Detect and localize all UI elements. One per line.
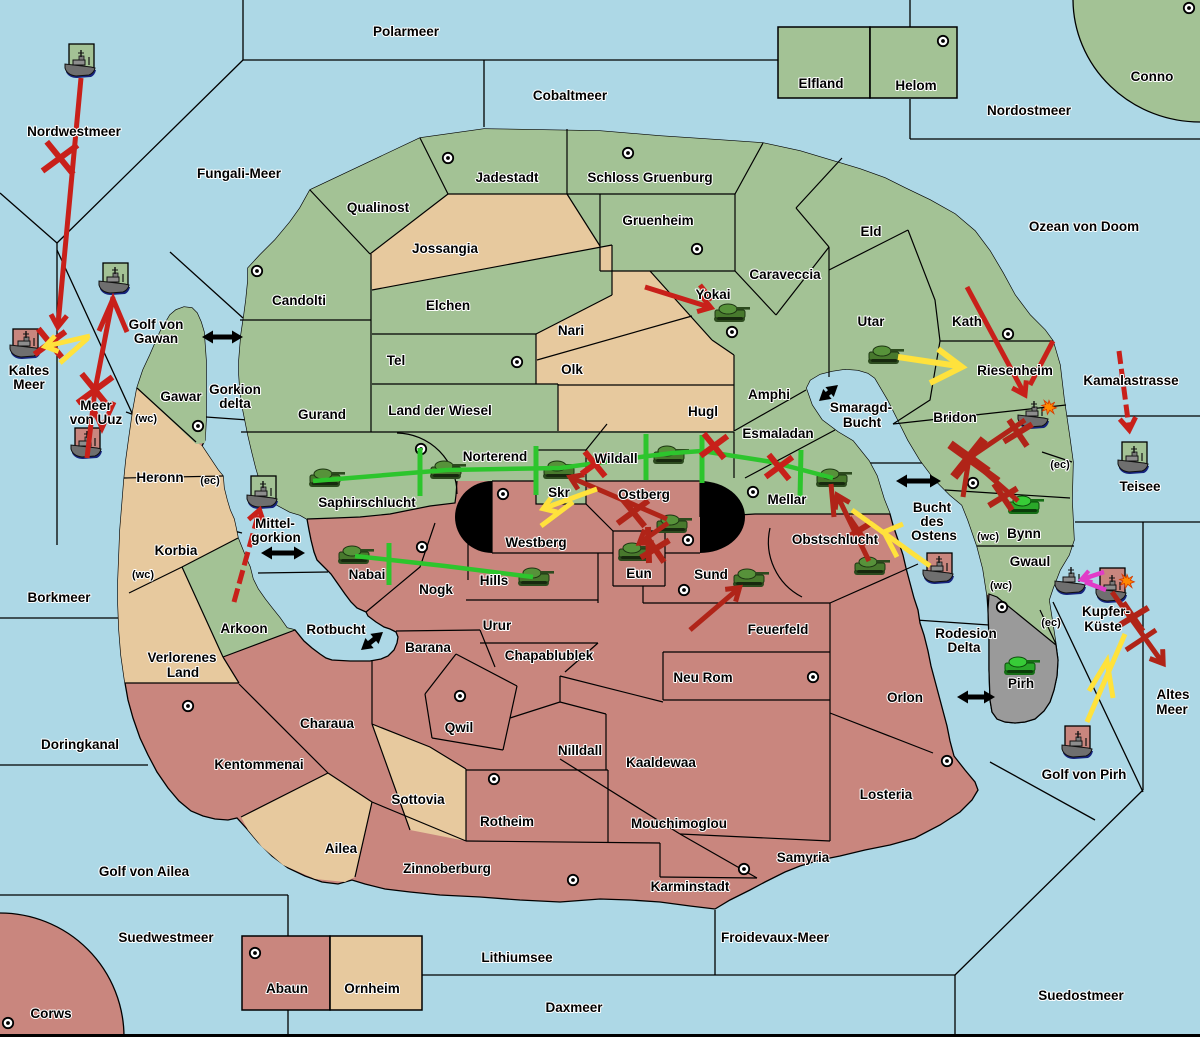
- svg-text:Yokai: Yokai: [695, 287, 730, 302]
- svg-text:Froidevaux-Meer: Froidevaux-Meer: [721, 930, 830, 945]
- svg-text:Kentommenai: Kentommenai: [214, 757, 303, 772]
- svg-text:Obstschlucht: Obstschlucht: [792, 532, 879, 547]
- svg-text:Meer: Meer: [80, 398, 112, 413]
- svg-text:Suedwestmeer: Suedwestmeer: [118, 930, 214, 945]
- svg-text:Feuerfeld: Feuerfeld: [748, 622, 809, 637]
- svg-text:delta: delta: [219, 396, 251, 411]
- svg-text:Sottovia: Sottovia: [391, 792, 445, 807]
- svg-text:Daxmeer: Daxmeer: [545, 1000, 603, 1015]
- svg-text:Cobaltmeer: Cobaltmeer: [533, 88, 608, 103]
- svg-text:Polarmeer: Polarmeer: [373, 24, 440, 39]
- svg-text:Elchen: Elchen: [426, 298, 470, 313]
- svg-text:Kamalastrasse: Kamalastrasse: [1083, 373, 1179, 388]
- svg-text:Hills: Hills: [480, 573, 509, 588]
- svg-text:Nogk: Nogk: [419, 582, 453, 597]
- svg-text:Mellar: Mellar: [767, 492, 807, 507]
- svg-text:Meer: Meer: [13, 377, 45, 392]
- svg-text:Golf von Ailea: Golf von Ailea: [99, 864, 190, 879]
- svg-text:Bucht: Bucht: [913, 500, 952, 515]
- svg-text:Gorkion: Gorkion: [209, 382, 261, 397]
- svg-text:Meer: Meer: [1156, 702, 1188, 717]
- svg-text:Saphirschlucht: Saphirschlucht: [318, 495, 416, 510]
- svg-text:Chapablublek: Chapablublek: [505, 648, 594, 663]
- svg-text:von Uuz: von Uuz: [70, 412, 123, 427]
- svg-text:Nilldall: Nilldall: [558, 743, 602, 758]
- svg-text:Riesenheim: Riesenheim: [977, 363, 1053, 378]
- svg-text:Charaua: Charaua: [300, 716, 355, 731]
- svg-text:Nabai: Nabai: [349, 567, 386, 582]
- svg-text:Utar: Utar: [857, 314, 885, 329]
- svg-text:Eun: Eun: [626, 566, 652, 581]
- svg-text:Bynn: Bynn: [1007, 526, 1041, 541]
- svg-text:Teisee: Teisee: [1119, 479, 1161, 494]
- svg-text:Nordostmeer: Nordostmeer: [987, 103, 1072, 118]
- svg-text:Amphi: Amphi: [748, 387, 790, 402]
- svg-text:Karminstadt: Karminstadt: [651, 879, 730, 894]
- svg-text:Zinnoberburg: Zinnoberburg: [403, 861, 491, 876]
- svg-text:Kaaldewaa: Kaaldewaa: [626, 755, 696, 770]
- svg-text:Rotbucht: Rotbucht: [306, 622, 366, 637]
- svg-text:Doringkanal: Doringkanal: [41, 737, 119, 752]
- svg-text:Altes: Altes: [1156, 687, 1189, 702]
- svg-text:Skr: Skr: [548, 485, 571, 500]
- svg-text:Golf von Pirh: Golf von Pirh: [1042, 767, 1127, 782]
- svg-text:Abaun: Abaun: [266, 981, 308, 996]
- svg-text:Verlorenes: Verlorenes: [147, 650, 216, 665]
- svg-text:Ailea: Ailea: [325, 841, 358, 856]
- svg-text:Qwil: Qwil: [445, 720, 474, 735]
- svg-text:Esmaladan: Esmaladan: [742, 426, 813, 441]
- svg-text:(ec): (ec): [1050, 459, 1070, 471]
- svg-text:Corws: Corws: [30, 1006, 71, 1021]
- svg-text:(ec): (ec): [200, 475, 220, 487]
- svg-text:Neu Rom: Neu Rom: [673, 670, 732, 685]
- svg-text:Land der Wiesel: Land der Wiesel: [388, 403, 491, 418]
- svg-text:Lithiumsee: Lithiumsee: [481, 950, 553, 965]
- svg-text:Tel: Tel: [387, 353, 406, 368]
- svg-text:Hugl: Hugl: [688, 404, 718, 419]
- svg-text:Rotheim: Rotheim: [480, 814, 534, 829]
- svg-text:Arkoon: Arkoon: [220, 621, 267, 636]
- svg-text:Samyria: Samyria: [777, 850, 830, 865]
- svg-text:Losteria: Losteria: [860, 787, 913, 802]
- svg-text:(ec): (ec): [1041, 617, 1061, 629]
- svg-text:Golf von: Golf von: [129, 317, 184, 332]
- svg-text:Nari: Nari: [558, 323, 584, 338]
- svg-text:Helom: Helom: [895, 78, 936, 93]
- svg-text:Eld: Eld: [860, 224, 881, 239]
- svg-text:Ornheim: Ornheim: [344, 981, 400, 996]
- svg-text:Olk: Olk: [561, 362, 583, 377]
- svg-text:Korbia: Korbia: [155, 543, 198, 558]
- svg-text:Urur: Urur: [483, 618, 512, 633]
- svg-text:Qualinost: Qualinost: [347, 200, 410, 215]
- svg-text:Pirh: Pirh: [1008, 676, 1034, 691]
- svg-text:Elfland: Elfland: [798, 76, 843, 91]
- svg-text:Bridon: Bridon: [933, 410, 977, 425]
- svg-text:Sund: Sund: [694, 567, 728, 582]
- svg-text:Kaltes: Kaltes: [9, 363, 50, 378]
- svg-text:Mittel-: Mittel-: [255, 516, 295, 531]
- svg-text:Küste: Küste: [1084, 619, 1122, 634]
- svg-text:Jossangia: Jossangia: [412, 241, 479, 256]
- svg-text:Nordwestmeer: Nordwestmeer: [27, 124, 122, 139]
- svg-text:Borkmeer: Borkmeer: [27, 590, 91, 605]
- svg-text:Conno: Conno: [1131, 69, 1174, 84]
- svg-text:Gawan: Gawan: [134, 331, 178, 346]
- svg-text:Candolti: Candolti: [272, 293, 326, 308]
- svg-text:(wc): (wc): [132, 569, 154, 581]
- svg-text:Bucht: Bucht: [843, 415, 882, 430]
- svg-text:Gruenheim: Gruenheim: [622, 213, 693, 228]
- svg-text:Gwaul: Gwaul: [1010, 554, 1051, 569]
- svg-text:(wc): (wc): [990, 580, 1012, 592]
- svg-text:Norterend: Norterend: [463, 449, 528, 464]
- svg-text:Ostberg: Ostberg: [618, 487, 670, 502]
- svg-text:Fungali-Meer: Fungali-Meer: [197, 166, 282, 181]
- svg-text:Wildall: Wildall: [594, 451, 637, 466]
- svg-text:Rodesion: Rodesion: [935, 626, 997, 641]
- svg-text:Delta: Delta: [947, 640, 981, 655]
- svg-text:Kupfer-: Kupfer-: [1082, 604, 1130, 619]
- svg-text:gorkion: gorkion: [251, 530, 301, 545]
- svg-text:des: des: [920, 514, 943, 529]
- svg-text:Orlon: Orlon: [887, 690, 923, 705]
- svg-text:Westberg: Westberg: [505, 535, 566, 550]
- svg-text:Jadestadt: Jadestadt: [475, 170, 539, 185]
- svg-text:Gawar: Gawar: [160, 389, 202, 404]
- svg-text:(wc): (wc): [977, 531, 999, 543]
- svg-text:Heronn: Heronn: [136, 470, 183, 485]
- svg-text:Barana: Barana: [405, 640, 451, 655]
- svg-text:Ostens: Ostens: [911, 528, 957, 543]
- svg-text:Ozean von Doom: Ozean von Doom: [1029, 219, 1139, 234]
- svg-text:Land: Land: [167, 665, 199, 680]
- svg-text:Smaragd-: Smaragd-: [830, 400, 892, 415]
- svg-text:Schloss Gruenburg: Schloss Gruenburg: [587, 170, 712, 185]
- svg-text:Suedostmeer: Suedostmeer: [1038, 988, 1124, 1003]
- svg-text:Caraveccia: Caraveccia: [749, 267, 821, 282]
- svg-text:Gurand: Gurand: [298, 407, 346, 422]
- svg-text:Mouchimoglou: Mouchimoglou: [631, 816, 727, 831]
- svg-text:(wc): (wc): [135, 413, 157, 425]
- svg-text:Kath: Kath: [952, 314, 982, 329]
